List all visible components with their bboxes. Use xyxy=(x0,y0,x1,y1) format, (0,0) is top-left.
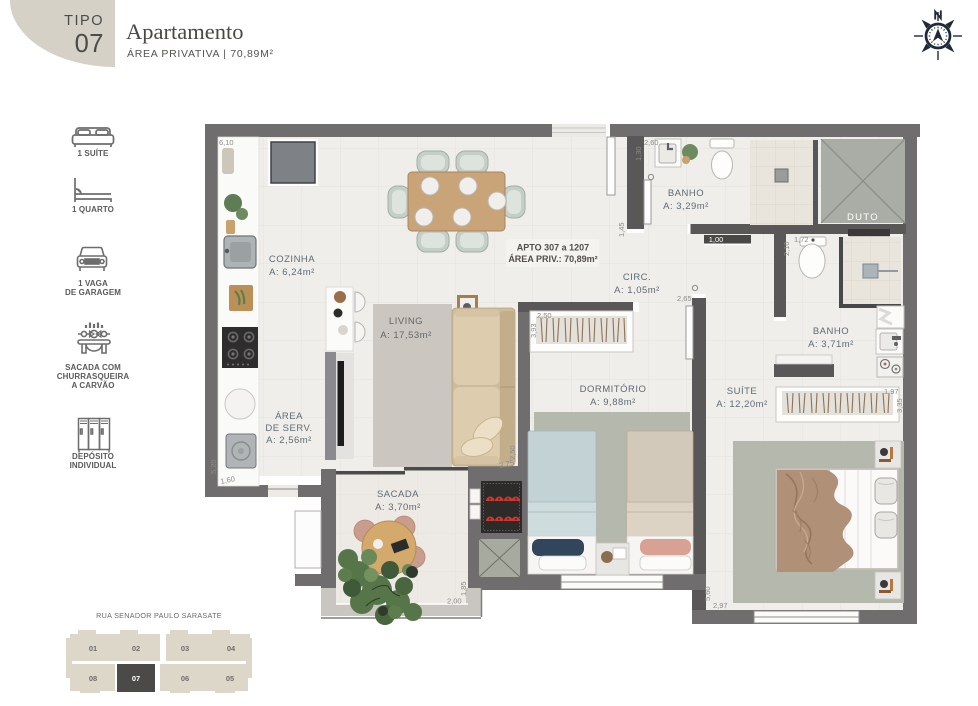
svg-text:1,00: 1,00 xyxy=(709,235,724,244)
svg-text:1,85: 1,85 xyxy=(459,581,468,596)
svg-text:1,97: 1,97 xyxy=(884,387,899,396)
svg-text:1,30: 1,30 xyxy=(634,146,643,161)
svg-text:SACADA: SACADA xyxy=(377,489,419,500)
svg-text:DE SERV.: DE SERV. xyxy=(265,423,312,434)
svg-text:CIRC.: CIRC. xyxy=(623,272,651,283)
svg-text:SUÍTE: SUÍTE xyxy=(727,386,757,397)
svg-text:A: 3,70m²: A: 3,70m² xyxy=(375,502,421,513)
svg-text:5,60: 5,60 xyxy=(703,586,712,601)
svg-text:2,97: 2,97 xyxy=(713,601,728,610)
svg-text:2,50: 2,50 xyxy=(537,311,552,320)
svg-text:07: 07 xyxy=(132,674,140,683)
svg-text:A: 12,20m²: A: 12,20m² xyxy=(716,399,767,410)
svg-text:A: 6,24m²: A: 6,24m² xyxy=(269,267,315,278)
svg-text:08: 08 xyxy=(89,674,97,683)
svg-text:1,45: 1,45 xyxy=(617,222,626,237)
svg-text:2,65: 2,65 xyxy=(677,294,692,303)
svg-text:A: 3,29m²: A: 3,29m² xyxy=(663,201,709,212)
svg-text:LIVING: LIVING xyxy=(389,316,423,327)
svg-text:A: 1,05m²: A: 1,05m² xyxy=(614,285,660,296)
svg-text:01: 01 xyxy=(89,644,97,653)
svg-text:3,93: 3,93 xyxy=(529,323,538,338)
svg-text:02: 02 xyxy=(132,644,140,653)
svg-text:ÁREA: ÁREA xyxy=(275,411,303,422)
svg-text:DUTO: DUTO xyxy=(847,212,879,223)
svg-text:BANHO: BANHO xyxy=(813,326,849,337)
svg-text:BANHO: BANHO xyxy=(668,188,704,199)
svg-text:A: 9,88m²: A: 9,88m² xyxy=(590,397,636,408)
svg-text:2,60: 2,60 xyxy=(644,138,659,147)
svg-text:03: 03 xyxy=(181,644,189,653)
svg-text:06: 06 xyxy=(181,674,189,683)
svg-text:5,20: 5,20 xyxy=(209,459,218,474)
svg-text:3,35: 3,35 xyxy=(895,398,904,413)
svg-text:DORMITÓRIO: DORMITÓRIO xyxy=(580,384,647,395)
svg-text:6,10: 6,10 xyxy=(219,138,234,147)
svg-text:A: 3,71m²: A: 3,71m² xyxy=(808,339,854,350)
svg-text:COZINHA: COZINHA xyxy=(269,254,315,265)
svg-text:1,72: 1,72 xyxy=(794,235,809,244)
svg-text:2,10: 2,10 xyxy=(782,241,791,256)
svg-text:ÁREA PRIV.: 70,89m²: ÁREA PRIV.: 70,89m² xyxy=(508,254,597,264)
svg-text:2,00: 2,00 xyxy=(447,597,462,606)
svg-text:APTO 307 a 1207: APTO 307 a 1207 xyxy=(517,243,589,253)
svg-text:A: 2,56m²: A: 2,56m² xyxy=(266,435,312,446)
svg-text:A: 17,53m²: A: 17,53m² xyxy=(380,330,431,341)
